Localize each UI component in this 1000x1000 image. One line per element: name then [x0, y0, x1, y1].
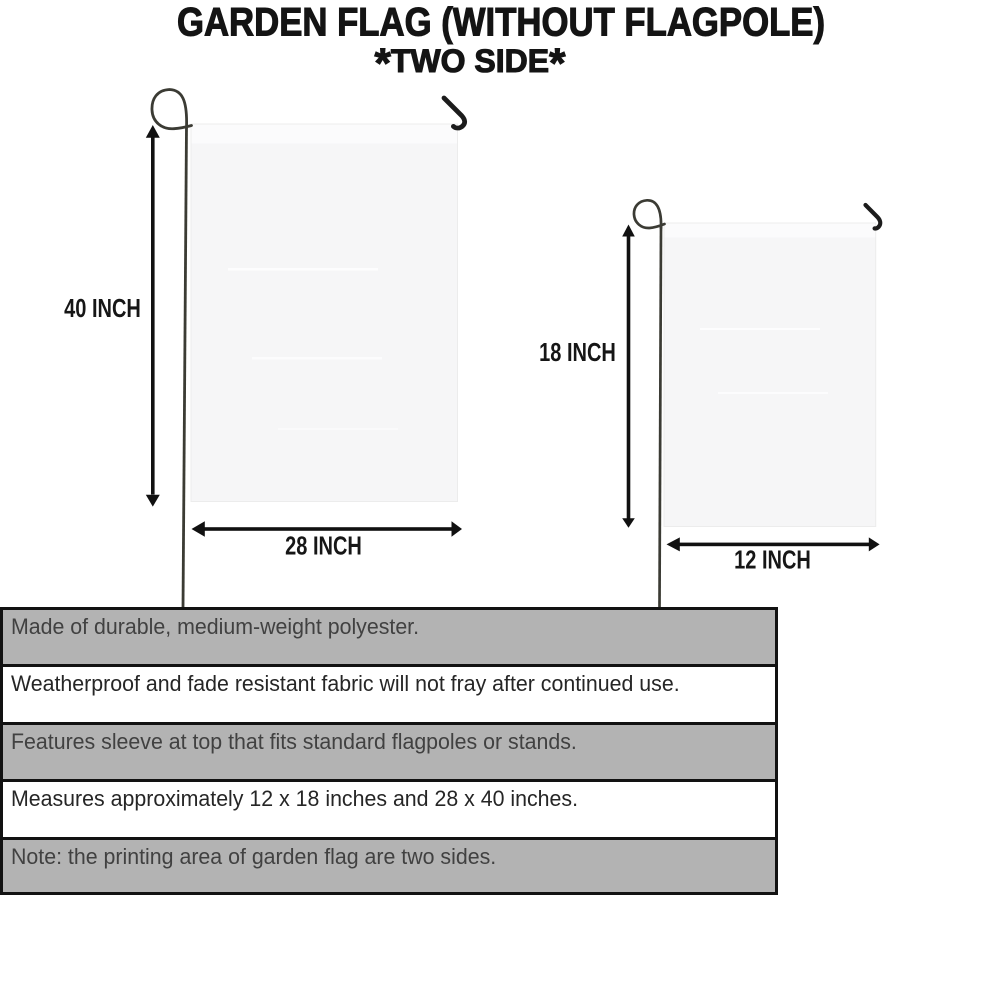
- svg-text:40 INCH: 40 INCH: [64, 293, 141, 322]
- svg-text:28 INCH: 28 INCH: [285, 531, 362, 560]
- svg-text:12 INCH: 12 INCH: [734, 545, 811, 574]
- svg-text:18 INCH: 18 INCH: [539, 337, 616, 366]
